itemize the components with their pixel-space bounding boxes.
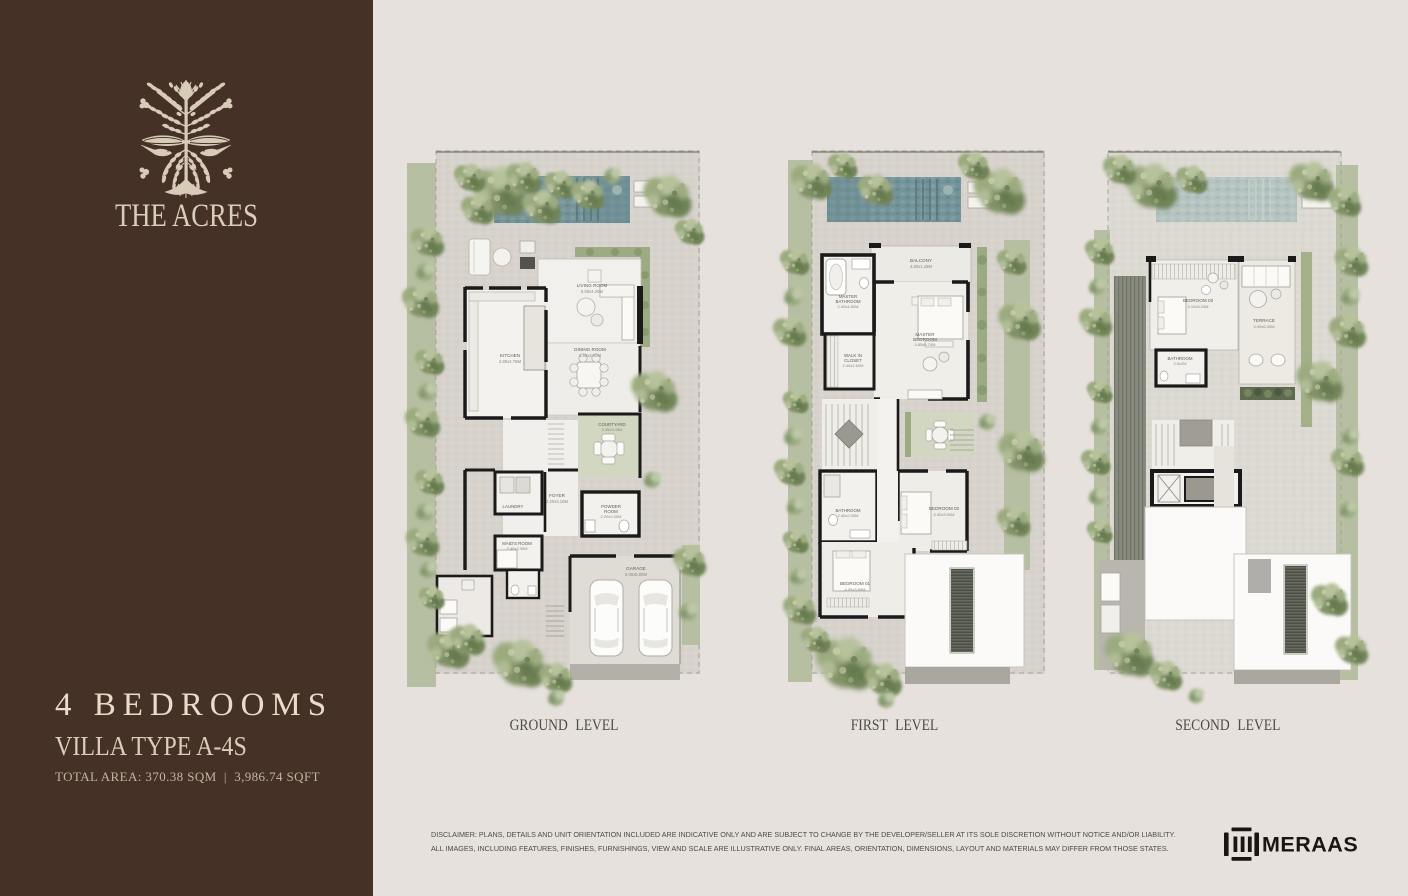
svg-text:KITCHEN: KITCHEN bbox=[500, 353, 520, 358]
svg-text:LAUNDRY: LAUNDRY bbox=[503, 504, 524, 509]
svg-text:4.10x5.20M: 4.10x5.20M bbox=[1188, 304, 1209, 309]
svg-text:TERRACE: TERRACE bbox=[1253, 318, 1275, 323]
svg-text:1.60x3.50M: 1.60x3.50M bbox=[579, 353, 601, 358]
svg-text:2.20x3.10M: 2.20x3.10M bbox=[546, 499, 568, 504]
svg-text:MERAAS: MERAAS bbox=[1262, 833, 1358, 857]
svg-text:3.45x3.45M: 3.45x3.45M bbox=[602, 427, 623, 432]
svg-text:2.40x2.00M: 2.40x2.00M bbox=[838, 513, 859, 518]
svg-text:4.85x6.70M: 4.85x6.70M bbox=[915, 342, 936, 347]
svg-text:BEDROOM 03: BEDROOM 03 bbox=[1183, 298, 1214, 303]
svg-text:2.40x4.80M: 2.40x4.80M bbox=[838, 304, 859, 309]
svg-text:2.40x2.60M: 2.40x2.60M bbox=[843, 363, 864, 368]
svg-text:BEDROOM 01: BEDROOM 01 bbox=[840, 581, 871, 586]
svg-text:3.09x6.40M: 3.09x6.40M bbox=[1254, 324, 1275, 329]
svg-text:GARAGE: GARAGE bbox=[626, 566, 646, 571]
svg-text:DINING ROOM: DINING ROOM bbox=[574, 347, 606, 352]
svg-text:BALCONY: BALCONY bbox=[910, 258, 932, 263]
svg-text:6.00x6.00M: 6.00x6.00M bbox=[625, 572, 647, 577]
svg-text:3.30x3.00M: 3.30x3.00M bbox=[934, 512, 955, 517]
svg-text:LIVING ROOM: LIVING ROOM bbox=[577, 283, 608, 288]
svg-text:2.5x2M: 2.5x2M bbox=[1173, 361, 1186, 366]
svg-text:BEDROOM 02: BEDROOM 02 bbox=[929, 506, 960, 511]
svg-text:5.00x4.20M: 5.00x4.20M bbox=[581, 289, 603, 294]
svg-text:4.80x1.25M: 4.80x1.25M bbox=[910, 264, 932, 269]
svg-text:2.20x2.00M: 2.20x2.00M bbox=[601, 514, 622, 519]
svg-text:2.40x2.30M: 2.40x2.30M bbox=[507, 546, 528, 551]
svg-text:4.05x3.65M: 4.05x3.65M bbox=[845, 587, 866, 592]
svg-text:2.80x4.78M: 2.80x4.78M bbox=[499, 359, 521, 364]
svg-text:FOYER: FOYER bbox=[549, 493, 566, 498]
